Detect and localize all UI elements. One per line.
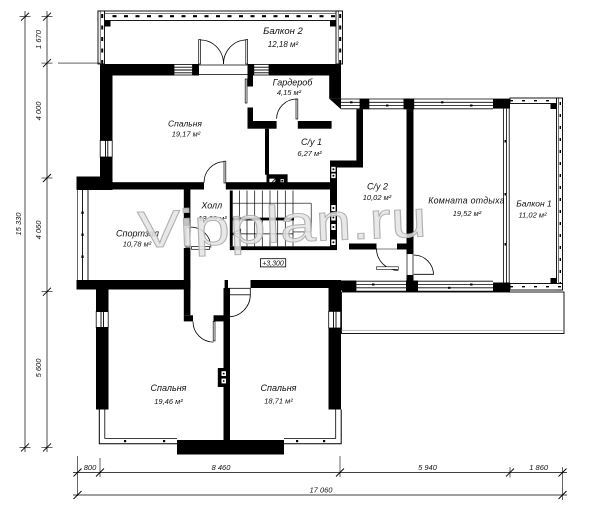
svg-text:1 860: 1 860 (529, 463, 549, 472)
svg-text:4,15 м²: 4,15 м² (277, 88, 302, 97)
svg-text:19,17 м²: 19,17 м² (172, 130, 201, 139)
svg-text:4 060: 4 060 (34, 220, 43, 240)
svg-text:19,46 м²: 19,46 м² (154, 397, 183, 406)
svg-text:19,52 м²: 19,52 м² (453, 209, 482, 218)
svg-text:5 940: 5 940 (418, 463, 438, 472)
svg-text:Спальня: Спальня (261, 383, 297, 393)
svg-text:С/у 1: С/у 1 (301, 137, 322, 147)
svg-text:4 000: 4 000 (34, 101, 43, 121)
svg-text:15 330: 15 330 (14, 212, 23, 236)
svg-text:Спальня: Спальня (168, 119, 202, 129)
svg-text:12,18 м²: 12,18 м² (268, 40, 299, 49)
svg-text:5 600: 5 600 (34, 358, 43, 378)
svg-text:Балкон 1: Балкон 1 (516, 199, 552, 209)
svg-text:Комната отдыха: Комната отдыха (428, 196, 505, 206)
svg-text:С/у 2: С/у 2 (367, 182, 388, 192)
svg-text:18,71 м²: 18,71 м² (264, 397, 293, 406)
svg-text:11,02 м²: 11,02 м² (519, 211, 547, 220)
svg-text:1 670: 1 670 (34, 29, 43, 49)
svg-text:800: 800 (84, 463, 97, 472)
svg-text:Vipplan.ru: Vipplan.ru (137, 190, 428, 260)
svg-text:8 460: 8 460 (212, 463, 232, 472)
svg-text:Спальня: Спальня (151, 383, 187, 393)
svg-text:17 060: 17 060 (310, 486, 334, 495)
svg-text:6,27 м²: 6,27 м² (297, 149, 322, 158)
svg-text:+3,300: +3,300 (262, 260, 284, 267)
svg-text:Гардероб: Гардероб (273, 78, 314, 88)
svg-text:Балкон 2: Балкон 2 (263, 26, 303, 37)
